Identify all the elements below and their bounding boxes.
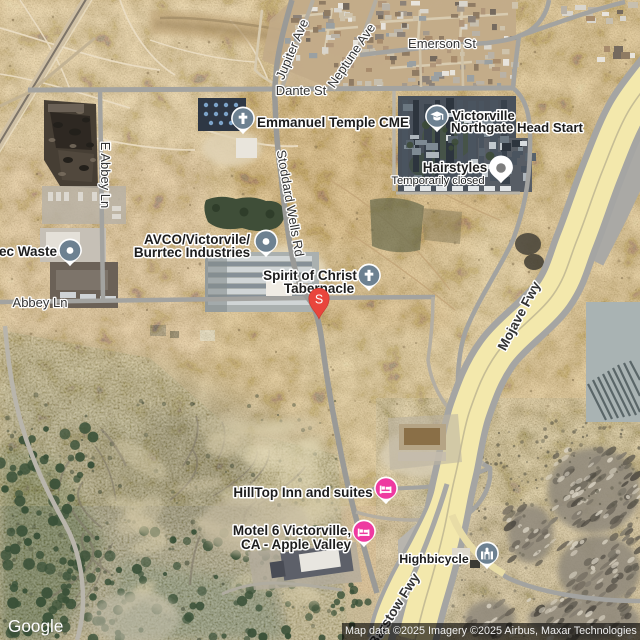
svg-text:tec Waste: tec Waste	[0, 244, 57, 259]
svg-text:Motel 6 Victorville,: Motel 6 Victorville,	[233, 523, 351, 538]
svg-text:Temporarily closed: Temporarily closed	[391, 175, 484, 187]
svg-text:Northgate Head Start: Northgate Head Start	[451, 120, 584, 135]
svg-text:Highbicycle: Highbicycle	[399, 552, 469, 566]
svg-text:E Abbey Ln: E Abbey Ln	[98, 142, 113, 209]
svg-text:HillTop Inn and suites: HillTop Inn and suites	[233, 485, 372, 500]
svg-text:Hairstyles: Hairstyles	[423, 160, 488, 175]
svg-text:Emmanuel Temple CME: Emmanuel Temple CME	[257, 115, 409, 130]
svg-text:Map data ©2025 Imagery ©2025 A: Map data ©2025 Imagery ©2025 Airbus, Max…	[345, 625, 637, 637]
svg-text:CA - Apple Valley: CA - Apple Valley	[241, 537, 352, 552]
svg-text:Emerson St: Emerson St	[408, 36, 476, 51]
svg-text:Abbey Ln: Abbey Ln	[13, 295, 68, 310]
svg-text:Burrtec Industries: Burrtec Industries	[134, 245, 250, 260]
svg-text:Google: Google	[8, 616, 63, 636]
svg-text:S: S	[315, 292, 323, 306]
svg-text:Dante St: Dante St	[276, 83, 327, 98]
